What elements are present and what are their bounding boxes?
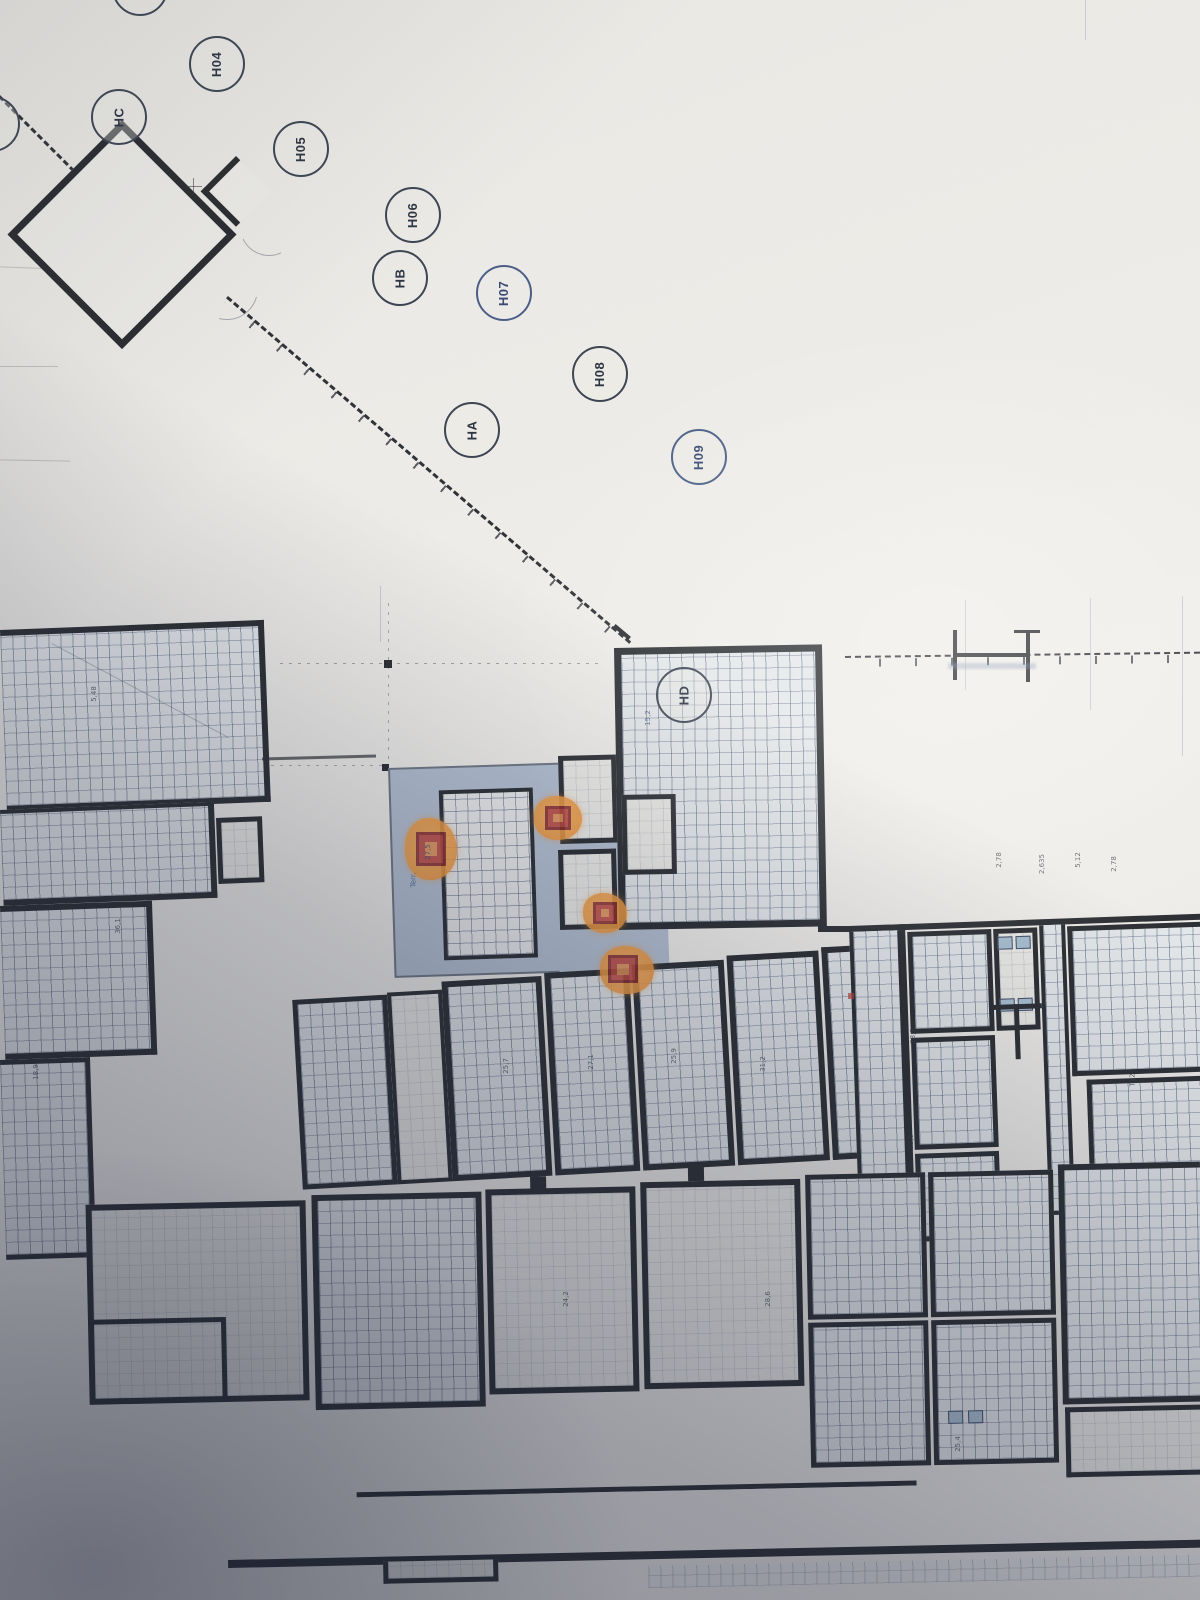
floor-plan-photo: { "boundary_labels": [ {"label":"HC"}, {…: [0, 0, 1200, 1600]
highlight-core: [608, 955, 638, 984]
marker-h07: H07: [476, 265, 532, 321]
room-white: [86, 1200, 310, 1405]
annotation: Terr.: [409, 873, 417, 888]
marker-hd-label: HD: [677, 685, 692, 705]
annotation: 2,78: [1110, 856, 1118, 872]
annotation: 5,12: [1074, 852, 1082, 868]
faint-line: [1182, 596, 1183, 756]
marker-h04: H04: [189, 36, 245, 92]
annotation: 27,1: [587, 1054, 595, 1070]
room: [544, 968, 640, 1175]
room: [632, 960, 735, 1171]
room: [808, 1320, 931, 1467]
faint-line: [0, 366, 58, 367]
annotation: 27,5: [424, 844, 432, 860]
annotation: 15,2: [644, 710, 652, 726]
faint-line: [1085, 0, 1086, 40]
bottom-section: [80, 1157, 1200, 1600]
marker-h08-label: H08: [592, 361, 607, 386]
room: [928, 1170, 1056, 1318]
annotation: 28,6: [764, 1291, 772, 1307]
red-dot: [848, 993, 854, 999]
annotation: 24,2: [562, 1291, 570, 1307]
marker-h06-label: H06: [405, 202, 420, 227]
marker-hb: HB: [372, 250, 428, 306]
marker-h09: H09: [671, 429, 727, 485]
marker-hb-label: HB: [393, 268, 408, 288]
room-block-left-lower: [0, 901, 157, 1060]
room: [907, 929, 995, 1034]
marker-hc: HC: [91, 89, 147, 145]
boundary-tick-marks: [223, 299, 631, 651]
faint-line: [380, 586, 381, 642]
faint-line: [965, 600, 966, 690]
annotation: 22,6: [907, 1134, 915, 1150]
highlight-mark-4: [600, 946, 654, 994]
marker-ha: HA: [444, 402, 500, 458]
marker-hd: HD: [656, 667, 712, 723]
room-block-left: [0, 802, 218, 906]
room-band: [290, 928, 877, 1195]
annotation: T12: [1129, 1073, 1137, 1086]
marker-h05: H05: [273, 121, 329, 177]
marker-h04-label: H04: [209, 51, 224, 76]
marker-hc-label: HC: [112, 107, 127, 127]
fixture: [968, 1410, 983, 1423]
room: [311, 1192, 485, 1411]
annotation: 25,7: [502, 1058, 510, 1074]
room: [805, 1172, 928, 1319]
fixture: [948, 1411, 963, 1424]
center-cross: [186, 186, 202, 187]
wall-tab: [688, 1167, 704, 1181]
highlight-mark-3: [583, 893, 627, 933]
annotation: 31,2: [759, 1056, 767, 1072]
annotation: 28,3: [909, 1028, 917, 1044]
entry-recess: [383, 1559, 498, 1583]
survey-point: [384, 660, 392, 668]
boundary-bracket: [1014, 630, 1040, 633]
room: [1058, 1162, 1200, 1405]
marker-h09-label: H09: [691, 444, 706, 469]
marker-h05-label: H05: [293, 136, 308, 161]
marker-clipped-top: [112, 0, 168, 16]
faint-dotted-line: [388, 600, 389, 768]
wall-tab: [530, 1176, 546, 1190]
marker-clipped-left: [0, 96, 20, 152]
room: [911, 1035, 999, 1150]
annotation: 18,9: [32, 1064, 40, 1080]
atrium-rectangle: [439, 787, 538, 960]
marker-h07-label: H07: [496, 280, 511, 305]
sub-room: [622, 794, 677, 875]
annotation: 25,4: [954, 1436, 962, 1452]
room-hd: [614, 644, 827, 930]
fixture: [1015, 936, 1030, 950]
annotation: 2,635: [1038, 854, 1046, 874]
room: [1067, 922, 1200, 1077]
faint-dotted-line: [280, 663, 600, 664]
detached-building-outline: [7, 120, 236, 349]
highlight-core: [545, 806, 572, 831]
annotation: 36,1: [114, 918, 122, 934]
highlight-core: [593, 902, 618, 924]
annotation: 2,78: [995, 852, 1003, 868]
room-white: [1065, 1404, 1200, 1477]
marker-h06: H06: [385, 187, 441, 243]
fixture: [997, 936, 1012, 950]
wall: [262, 755, 376, 761]
room: [726, 950, 830, 1165]
marker-ha-label: HA: [465, 420, 480, 440]
center-cross: [193, 178, 194, 194]
annotation: 5,48: [90, 686, 98, 702]
faint-dotted-line: [262, 765, 387, 766]
room: [441, 976, 552, 1181]
faint-line: [0, 459, 70, 461]
room-block-upper-left: [0, 620, 271, 812]
boundary-bracket: [1026, 632, 1030, 682]
room-white: [640, 1179, 804, 1389]
small-room: [216, 816, 264, 884]
boundary-bracket: [953, 653, 1030, 657]
highlight-mark-2: [534, 796, 582, 840]
room: [931, 1318, 1059, 1466]
annotation: 25,9: [670, 1048, 678, 1064]
room: [292, 995, 397, 1190]
blue-smudge: [948, 663, 1036, 669]
marker-h08: H08: [572, 346, 628, 402]
room-cutoff: [648, 1554, 1200, 1588]
